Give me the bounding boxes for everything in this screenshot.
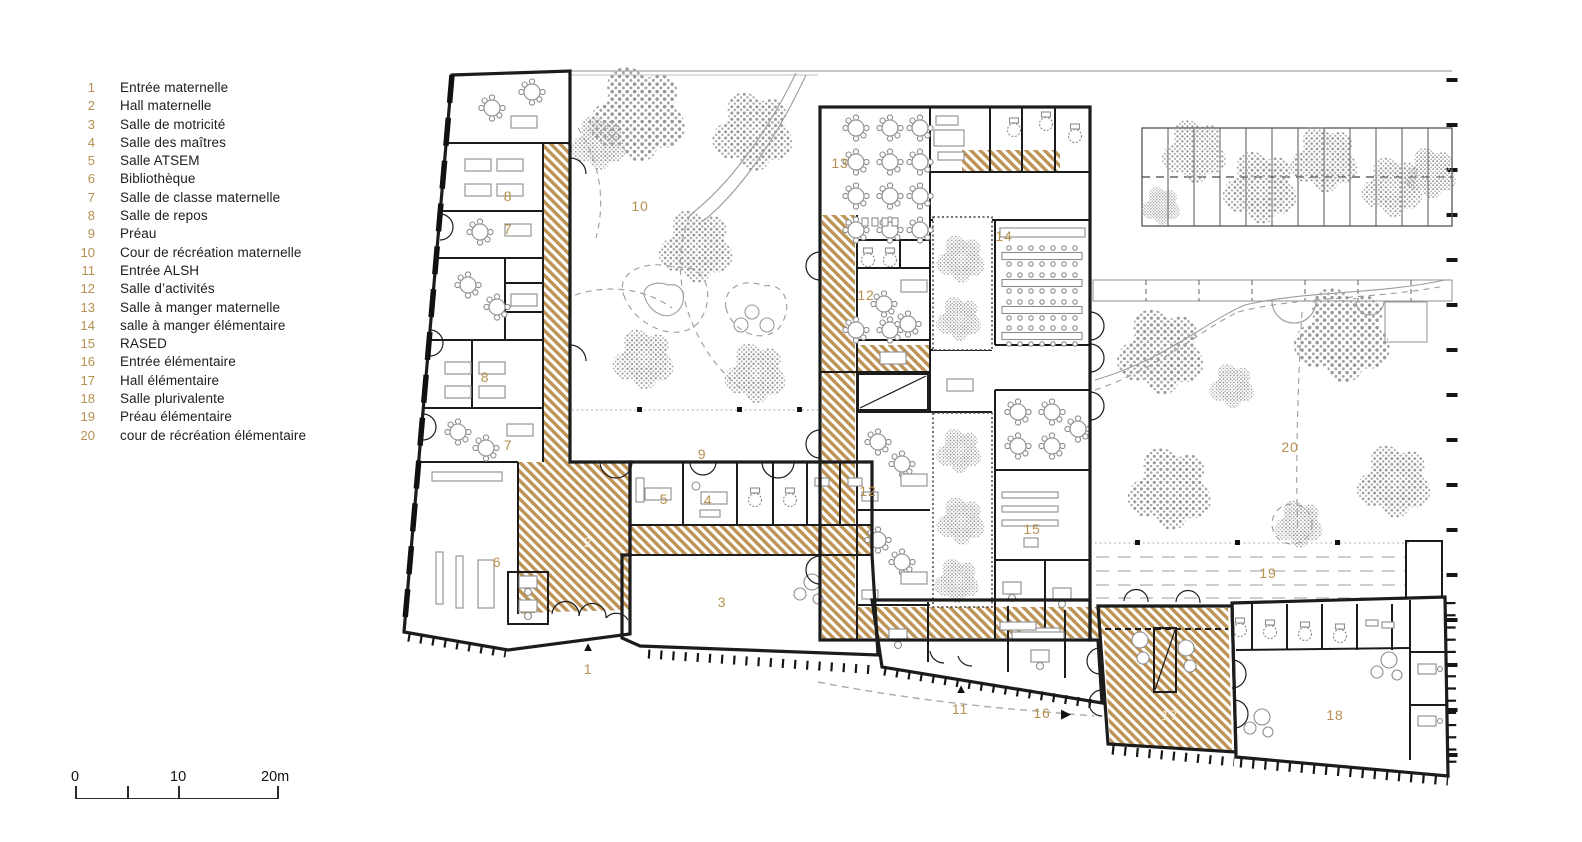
room-label-10: 10 <box>631 198 648 214</box>
scale-bar-line <box>75 798 278 799</box>
room-label-2: 2 <box>584 534 593 550</box>
corridor-middle-vertical <box>822 215 855 640</box>
room-label-7a: 7 <box>504 221 513 237</box>
room-label-8b: 8 <box>481 369 490 385</box>
room-label-8a: 8 <box>504 188 513 204</box>
room-label-16: 16 <box>1033 705 1050 721</box>
room-label-12b: 12 <box>859 483 876 499</box>
room-label-15: 15 <box>1023 521 1040 537</box>
room-label-6: 6 <box>493 554 502 570</box>
room-label-4: 4 <box>704 492 713 508</box>
floor-plan-drawing: ▲ ▲ ▶ 8 7 10 13 14 12 8 7 9 12 5 4 15 2 … <box>0 0 1582 842</box>
courtyard-maternelle <box>571 67 818 412</box>
room-label-19: 19 <box>1259 565 1276 581</box>
room-label-9: 9 <box>698 446 707 462</box>
school-floor-plan-page: 1Entrée maternelle 2Hall maternelle 3Sal… <box>0 0 1582 842</box>
entrance-maternelle-icon: ▲ <box>582 639 595 654</box>
scale-bar-tick <box>277 786 279 799</box>
room-label-20: 20 <box>1281 439 1298 455</box>
scale-tick-0: 0 <box>71 769 79 785</box>
room-label-18: 18 <box>1326 707 1343 723</box>
room-label-7b: 7 <box>504 437 513 453</box>
room-label-13: 13 <box>831 155 848 171</box>
scale-bar-tick <box>178 786 180 799</box>
scale-bar-tick <box>127 786 129 799</box>
pergola-canopy <box>1142 120 1456 226</box>
hall-maternelle-area <box>518 462 630 614</box>
courtyard-elementaire <box>1093 280 1452 548</box>
room-label-17: 17 <box>1161 707 1178 723</box>
room-label-3: 3 <box>718 594 727 610</box>
room-label-14: 14 <box>995 228 1012 244</box>
scale-tick-10: 10 <box>170 769 186 785</box>
room-label-1: 1 <box>584 661 593 677</box>
scale-bar: 0 10 20m <box>75 769 295 805</box>
room-label-12a: 12 <box>857 287 874 303</box>
room-label-11: 11 <box>952 701 968 717</box>
scale-tick-20m: 20m <box>261 769 289 785</box>
entrance-alsh-icon: ▲ <box>955 681 968 696</box>
room-label-5: 5 <box>660 491 669 507</box>
entrance-elementaire-icon: ▶ <box>1061 706 1071 721</box>
corridor-kitchen <box>962 150 1060 172</box>
corridor-maternelle <box>543 143 570 462</box>
scale-bar-tick <box>75 786 77 799</box>
